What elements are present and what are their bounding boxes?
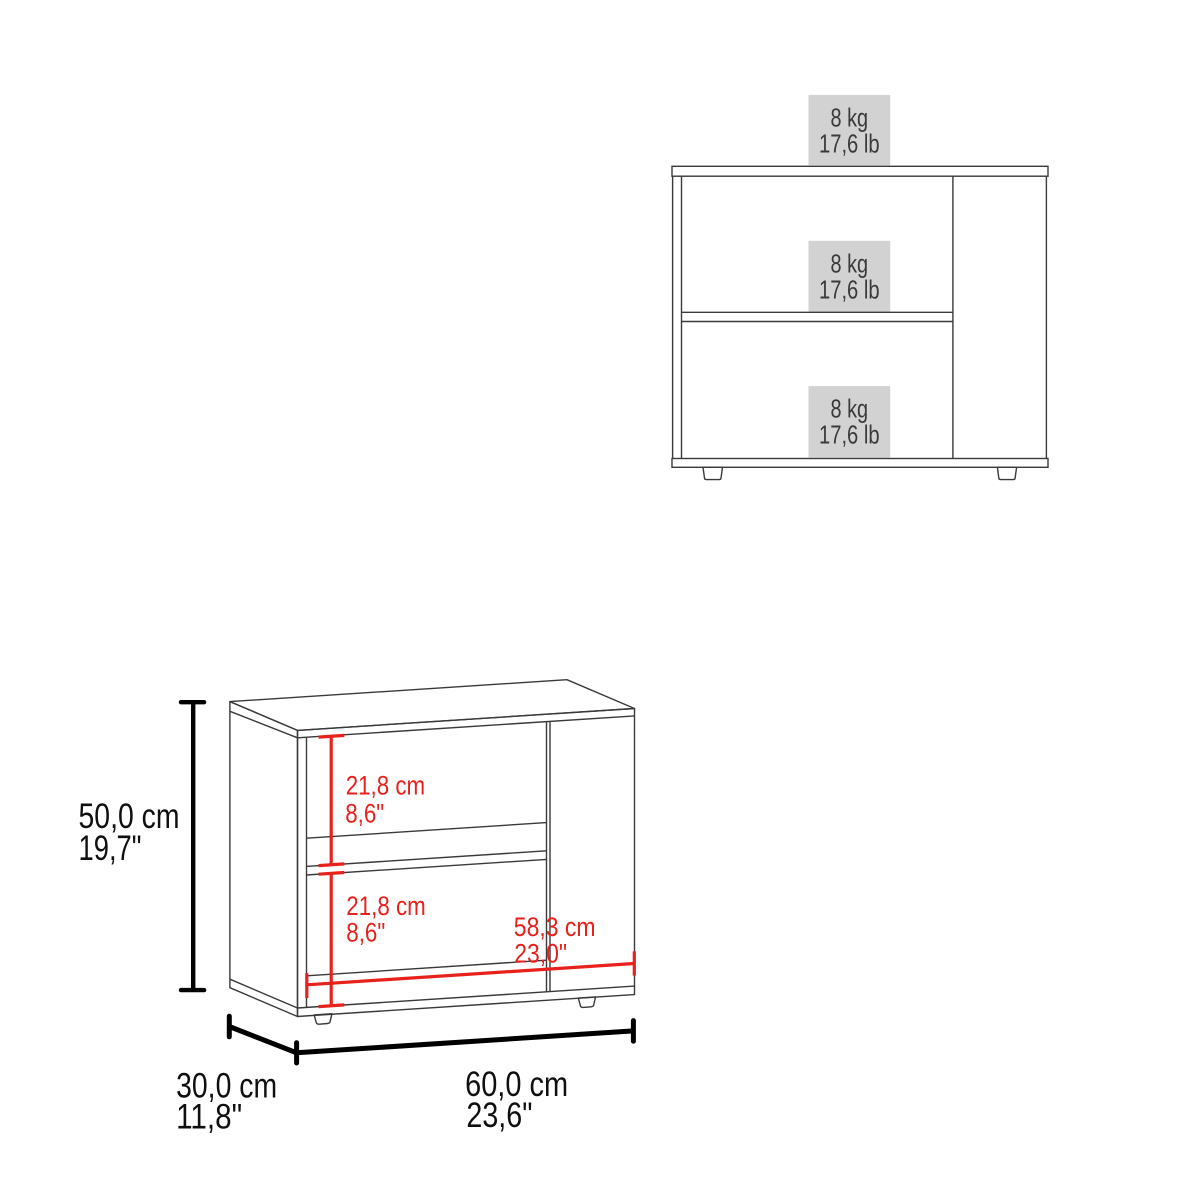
- svg-text:21,8 cm: 21,8 cm: [346, 771, 425, 801]
- svg-text:17,6 lb: 17,6 lb: [819, 129, 880, 159]
- svg-text:17,6 lb: 17,6 lb: [819, 420, 880, 450]
- svg-text:11,8": 11,8": [176, 1097, 242, 1136]
- svg-text:23,0": 23,0": [514, 938, 567, 968]
- svg-text:17,6 lb: 17,6 lb: [819, 275, 880, 305]
- svg-text:23,6": 23,6": [466, 1096, 532, 1135]
- svg-text:8,6": 8,6": [345, 799, 384, 829]
- svg-text:8,6": 8,6": [346, 918, 385, 948]
- svg-text:19,7": 19,7": [79, 829, 142, 868]
- svg-text:58,3 cm: 58,3 cm: [514, 912, 596, 942]
